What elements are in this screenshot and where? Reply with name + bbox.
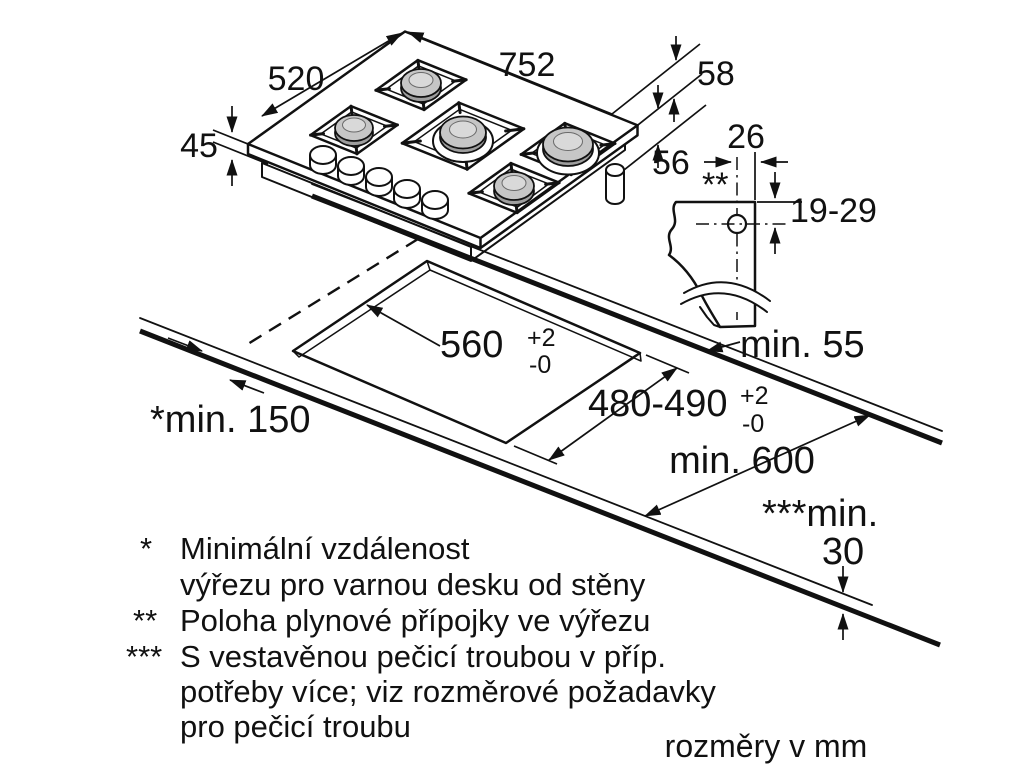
knob-4 [394,180,420,208]
legend-marker-2: ** [133,603,157,638]
knob-3 [366,168,392,196]
cutout-depth-tol-minus: -0 [742,410,764,438]
knob-5 [422,191,448,219]
cutout-width-tol-minus: -0 [529,351,551,379]
gas-connection-stub [606,164,624,204]
legend-item-2-line-1: Poloha plynové přípojky ve výřezu [180,603,650,638]
gas-connection-detail: 26 ** 19-29 [669,118,877,327]
units-note: rozměry v mm [665,728,868,764]
oven-clearance-prefix-label: ***min. [762,493,878,535]
cutout-depth-label: 480-490 [588,383,727,425]
cutout-width-label: 560 [440,324,503,366]
dim-height-label: 45 [180,127,218,165]
detail-depth-range-label: 19-29 [790,192,877,230]
oven-clearance-value-label: 30 [822,531,864,573]
legend-item-1-line-1: Minimální vzdálenost [180,531,470,566]
knob-1 [310,146,336,174]
installation-diagram-page: 520 752 45 58 56 26 ** [0,0,1024,768]
legend-item-3-line-3: pro pečicí troubu [180,709,411,744]
cutout-depth-tol-plus: +2 [740,382,769,410]
detail-offset-label: 26 [727,118,765,156]
side-clearance-label: *min. 150 [150,399,311,441]
detail-ref-marker: ** [702,166,728,204]
counter-depth-label: min. 600 [669,440,815,482]
installation-diagram: 520 752 45 58 56 26 ** [0,0,1024,768]
legend-marker-3: *** [126,639,162,674]
legend-item-1-line-2: výřezu pro varnou desku od stěny [180,567,646,602]
legend-marker-1: * [140,531,152,566]
legend-item-3-line-2: potřeby více; viz rozměrové požadavky [180,674,716,709]
dim-width-label: 752 [499,46,556,84]
back-clearance-label: min. 55 [740,324,865,366]
legend-item-3-line-1: S vestavěnou pečicí troubou v příp. [180,639,666,674]
legend: * Minimální vzdálenost výřezu pro varnou… [126,531,716,744]
dim-gas-offset-top-label: 58 [697,55,735,93]
knob-2 [338,157,364,185]
dim-depth-label: 520 [268,60,325,98]
dim-gas-offset-side-label: 56 [652,144,690,182]
cutout-width-tol-plus: +2 [527,324,556,352]
